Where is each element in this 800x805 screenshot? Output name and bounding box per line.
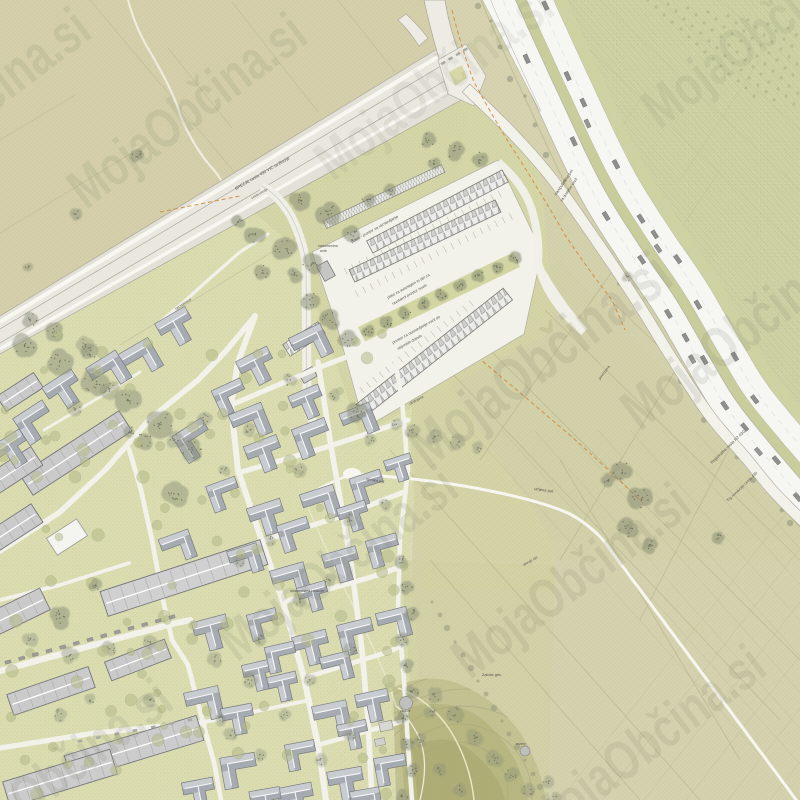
svg-text:avtb: avtb xyxy=(320,249,327,253)
svg-text:vodohr: vodohr xyxy=(400,709,412,713)
svg-text:rezerv: rezerv xyxy=(516,742,526,746)
svg-text:nadomestna: nadomestna xyxy=(318,244,338,248)
